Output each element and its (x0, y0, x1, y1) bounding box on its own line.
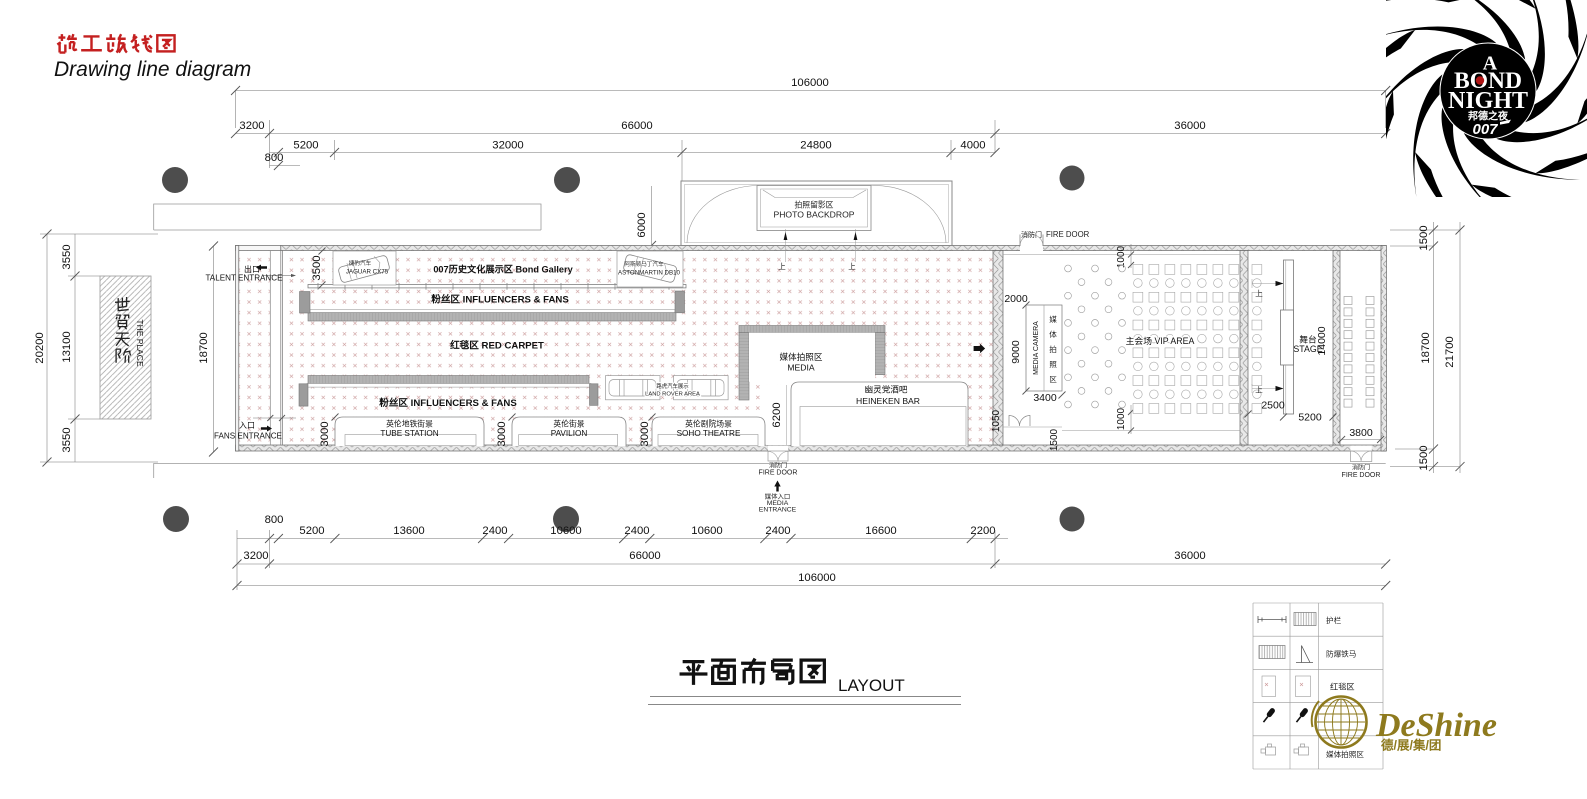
svg-text:消防门: 消防门 (1021, 230, 1042, 239)
svg-text:上: 上 (1255, 386, 1263, 395)
svg-text:FIRE DOOR: FIRE DOOR (1046, 230, 1090, 239)
svg-text:LAND ROVER AREA: LAND ROVER AREA (645, 392, 700, 398)
svg-text:拍照留影区: 拍照留影区 (795, 200, 834, 210)
svg-text:36000: 36000 (1174, 550, 1205, 562)
svg-text:2500: 2500 (1261, 400, 1285, 412)
svg-text:1000: 1000 (1116, 245, 1127, 268)
svg-text:18700: 18700 (198, 332, 210, 363)
svg-text:上: 上 (778, 262, 786, 271)
svg-text:6200: 6200 (771, 402, 783, 427)
svg-text:FIRE DOOR: FIRE DOOR (1342, 472, 1381, 479)
svg-text:2400: 2400 (624, 525, 649, 537)
svg-text:NIGHT: NIGHT (1448, 88, 1528, 114)
svg-text:3200: 3200 (243, 550, 268, 562)
svg-text:幽灵党酒吧: 幽灵党酒吧 (865, 384, 908, 395)
svg-text:1050: 1050 (991, 409, 1002, 432)
svg-text:3500: 3500 (311, 255, 323, 280)
svg-text:SOHO THEATRE: SOHO THEATRE (677, 429, 741, 438)
svg-text:THE PLACE: THE PLACE (135, 319, 145, 367)
svg-text:ENTRANCE: ENTRANCE (759, 507, 797, 514)
svg-text:16600: 16600 (865, 525, 896, 537)
svg-text:FIRE DOOR: FIRE DOOR (759, 470, 798, 477)
svg-text:106000: 106000 (798, 572, 836, 584)
svg-text:2000: 2000 (1004, 293, 1028, 305)
svg-text:FANS ENTRANCE: FANS ENTRANCE (214, 432, 283, 441)
svg-text:21700: 21700 (1444, 336, 1456, 367)
svg-text:体: 体 (1049, 329, 1057, 339)
svg-text:13600: 13600 (393, 525, 424, 537)
svg-text:2400: 2400 (765, 525, 790, 537)
svg-text:9000: 9000 (1010, 340, 1022, 364)
svg-text:捷豹汽车: 捷豹汽车 (349, 259, 372, 267)
svg-text:66000: 66000 (621, 120, 652, 132)
svg-text:LAYOUT: LAYOUT (838, 676, 905, 695)
svg-text:1500: 1500 (1049, 428, 1060, 451)
svg-text:14000: 14000 (1316, 326, 1328, 355)
svg-text:3000: 3000 (319, 421, 331, 446)
svg-text:HEINEKEN BAR: HEINEKEN BAR (856, 396, 920, 406)
svg-text:粉丝区 INFLUENCERS & FANS: 粉丝区 INFLUENCERS & FANS (431, 294, 569, 306)
svg-text:粉丝区 INFLUENCERS & FANS: 粉丝区 INFLUENCERS & FANS (379, 397, 517, 409)
svg-text:消防门: 消防门 (1352, 464, 1370, 472)
svg-text:媒: 媒 (1049, 315, 1057, 324)
svg-text:出口: 出口 (244, 264, 260, 274)
svg-text:4000: 4000 (960, 140, 985, 152)
svg-text:主会场 VIP AREA: 主会场 VIP AREA (1126, 335, 1195, 346)
svg-text:1500: 1500 (1418, 225, 1430, 250)
svg-text:消防门: 消防门 (769, 462, 787, 470)
svg-text:007历史文化展示区 Bond Gallery: 007历史文化展示区 Bond Gallery (433, 264, 573, 275)
svg-text:5200: 5200 (1298, 412, 1322, 424)
svg-text:106000: 106000 (791, 77, 829, 89)
svg-text:5200: 5200 (293, 140, 318, 152)
svg-text:英伦街景: 英伦街景 (553, 419, 584, 429)
svg-text:照: 照 (1049, 360, 1057, 369)
svg-text:防爆铁马: 防爆铁马 (1326, 649, 1356, 659)
svg-text:媒体拍照区: 媒体拍照区 (780, 351, 823, 362)
svg-text:JAGUAR CX75: JAGUAR CX75 (346, 269, 389, 276)
svg-text:舞台: 舞台 (1299, 334, 1317, 345)
svg-text:英伦地铁街景: 英伦地铁街景 (386, 419, 433, 429)
svg-text:拍: 拍 (1049, 344, 1057, 354)
svg-text:MEDIA CAMERA: MEDIA CAMERA (1033, 321, 1040, 375)
svg-text:66000: 66000 (629, 550, 660, 562)
svg-text:TALENT ENTRANCE: TALENT ENTRANCE (205, 274, 283, 283)
svg-text:上: 上 (1255, 289, 1263, 298)
svg-text:32000: 32000 (492, 140, 523, 152)
svg-text:上: 上 (848, 262, 856, 271)
svg-text:护栏: 护栏 (1326, 615, 1342, 625)
svg-text:36000: 36000 (1174, 120, 1205, 132)
svg-text:阿斯顿马丁汽车: 阿斯顿马丁汽车 (624, 260, 664, 268)
svg-text:区: 区 (1049, 375, 1057, 384)
svg-text:德/展/集/团: 德/展/集/团 (1381, 738, 1441, 753)
svg-text:007: 007 (1472, 121, 1498, 138)
svg-text:3000: 3000 (639, 421, 651, 446)
svg-text:路虎汽车展示: 路虎汽车展示 (656, 382, 689, 390)
svg-text:ASTONMARTIN DB10: ASTONMARTIN DB10 (618, 270, 681, 277)
svg-text:红毯区: 红毯区 (1330, 682, 1355, 692)
svg-text:红毯区 RED CARPET: 红毯区 RED CARPET (450, 340, 544, 352)
svg-text:13100: 13100 (61, 331, 73, 362)
svg-text:PAVILION: PAVILION (551, 429, 588, 438)
svg-text:3800: 3800 (1349, 427, 1373, 439)
svg-text:Drawing line diagram: Drawing line diagram (54, 58, 251, 81)
svg-text:媒体拍照区: 媒体拍照区 (1326, 749, 1364, 759)
svg-text:TUBE STATION: TUBE STATION (380, 429, 438, 438)
svg-text:1000: 1000 (1116, 407, 1127, 430)
svg-text:3200: 3200 (239, 120, 264, 132)
svg-text:800: 800 (265, 514, 284, 526)
svg-text:18700: 18700 (1420, 332, 1432, 363)
svg-text:5200: 5200 (299, 525, 324, 537)
svg-text:PHOTO BACKDROP: PHOTO BACKDROP (773, 210, 854, 220)
svg-text:10600: 10600 (550, 525, 581, 537)
svg-text:3000: 3000 (496, 421, 508, 446)
svg-text:2400: 2400 (482, 525, 507, 537)
svg-text:24800: 24800 (800, 140, 831, 152)
svg-text:3550: 3550 (61, 427, 73, 452)
svg-text:MEDIA: MEDIA (787, 363, 814, 373)
svg-text:1500: 1500 (1418, 445, 1430, 470)
svg-text:3550: 3550 (61, 244, 73, 269)
svg-text:3400: 3400 (1033, 392, 1057, 404)
svg-text:10600: 10600 (691, 525, 722, 537)
svg-text:2200: 2200 (970, 525, 995, 537)
svg-text:入口: 入口 (239, 421, 255, 430)
svg-text:800: 800 (265, 152, 284, 164)
svg-text:6000: 6000 (636, 212, 648, 237)
svg-text:英伦剧院场景: 英伦剧院场景 (685, 419, 732, 429)
svg-text:20200: 20200 (34, 332, 46, 363)
